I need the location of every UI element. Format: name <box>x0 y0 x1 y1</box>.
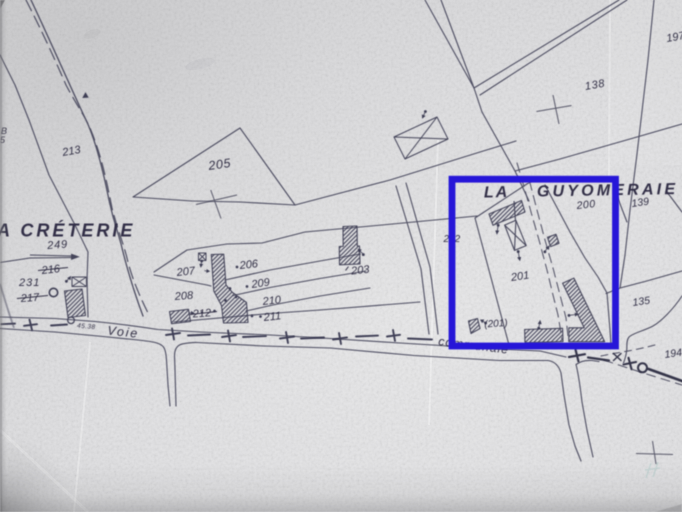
svg-text:210: 210 <box>261 294 282 308</box>
svg-text:208: 208 <box>173 290 194 303</box>
svg-text:206: 206 <box>238 258 259 272</box>
svg-text:203: 203 <box>350 264 371 278</box>
svg-text:A CRÉTERIE: A CRÉTERIE <box>0 220 135 241</box>
svg-text:200: 200 <box>575 198 596 212</box>
svg-text:135: 135 <box>632 295 651 309</box>
svg-text:197: 197 <box>665 30 682 45</box>
svg-text:207: 207 <box>175 265 196 279</box>
svg-text:194: 194 <box>664 347 682 361</box>
svg-text:LA: LA <box>484 184 510 201</box>
svg-text:249: 249 <box>46 239 69 252</box>
svg-text:GUYOMERAIE: GUYOMERAIE <box>537 181 679 200</box>
svg-text:211: 211 <box>262 310 282 324</box>
svg-text:(201): (201) <box>484 318 508 331</box>
svg-text:231: 231 <box>18 277 40 289</box>
